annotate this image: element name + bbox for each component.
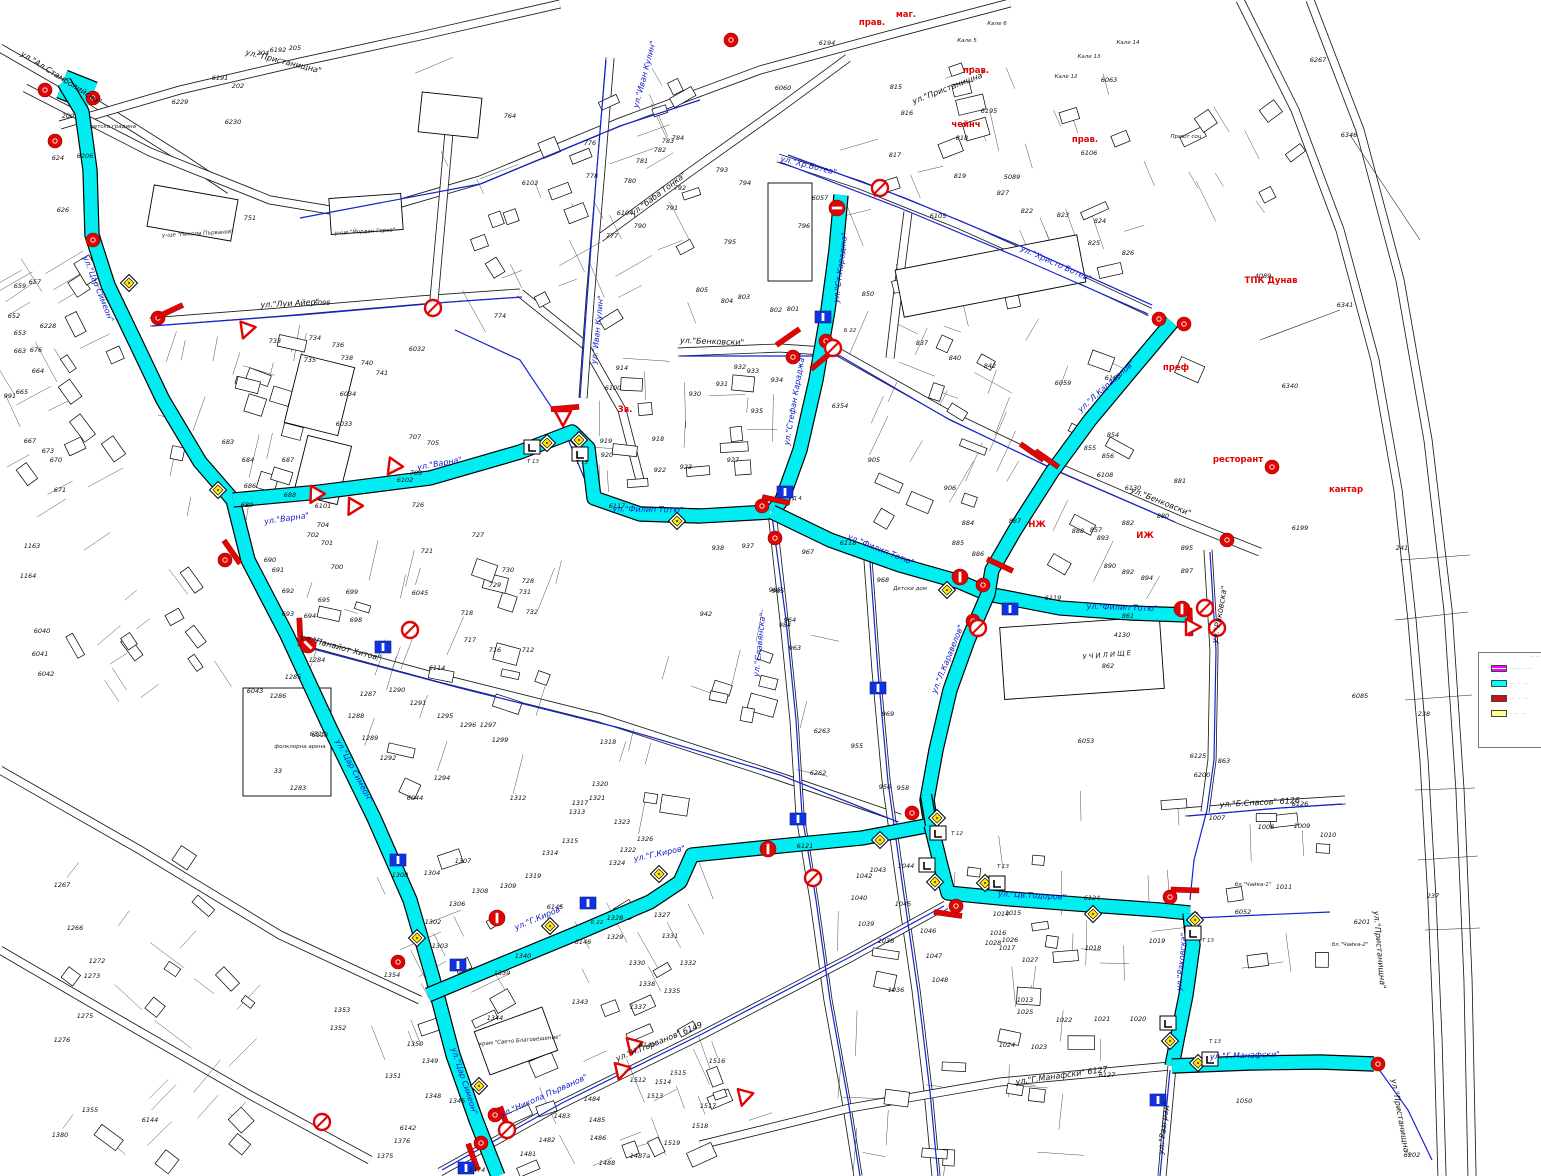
poi-label: Т 13 — [527, 459, 540, 465]
parcel-number: 1518 — [692, 1122, 709, 1130]
triangle-icon[interactable] — [734, 1089, 753, 1108]
parcel-number: 985 — [772, 587, 784, 595]
hydrant-icon[interactable] — [1220, 533, 1234, 547]
parcel-line — [307, 582, 312, 598]
parcel-number: 1292 — [380, 754, 397, 762]
parcel-number: 726 — [412, 501, 424, 509]
parcel-number: 6101 — [315, 502, 332, 510]
hydrant-icon[interactable] — [1177, 317, 1191, 331]
parcel-number: 657 — [29, 278, 42, 286]
annotation-label: Зв. — [618, 405, 633, 415]
parcel-number: 1164 — [20, 572, 37, 580]
hydrant-icon[interactable] — [1265, 460, 1279, 474]
parcel-number: 6262 — [810, 769, 827, 777]
parcel-number: 931 — [716, 380, 728, 388]
parcel-number: 854 — [1107, 431, 1119, 439]
parcel-number: 1340 — [515, 952, 532, 960]
hydrant-icon[interactable] — [1371, 1057, 1385, 1071]
noentry-icon[interactable] — [1174, 601, 1190, 617]
annotation-label: прав. — [859, 18, 885, 28]
parcel-number: 6042 — [38, 670, 55, 678]
building — [94, 1124, 123, 1150]
poi-label: Кале 13 — [1078, 54, 1101, 60]
parcel-line — [652, 68, 662, 85]
hydrant-icon[interactable] — [724, 33, 738, 47]
poi-label: бл."Чайка-1" — [1235, 882, 1272, 888]
parcel-number: 6118 — [840, 539, 857, 547]
parcel-number: 1320 — [592, 780, 609, 788]
building — [354, 602, 370, 613]
parcel-number: 1482 — [539, 1136, 556, 1144]
parcel-line — [800, 701, 807, 728]
building — [488, 211, 504, 228]
legend-item: ·· ·· ·· — [1491, 693, 1541, 704]
parcel-number: 815 — [890, 83, 902, 91]
water-main-street[interactable] — [64, 82, 498, 1176]
hydrant-icon[interactable] — [949, 899, 963, 913]
noentry-o-icon[interactable] — [1197, 600, 1213, 616]
hydrant-icon[interactable] — [391, 955, 405, 969]
building — [66, 633, 85, 658]
legend-item: ·· ·· ·· — [1491, 678, 1541, 689]
parcel-number: 897 — [1181, 567, 1194, 575]
parcel-number: 905 — [868, 456, 880, 464]
poi-label: Детски дом — [892, 586, 927, 592]
valve-icon[interactable] — [1171, 887, 1199, 893]
parcel-number: 801 — [787, 305, 799, 313]
diamond-icon[interactable] — [121, 275, 138, 292]
parcel-number: 6230 — [225, 118, 242, 126]
sign-t13-icon[interactable] — [919, 858, 935, 872]
legend-swatch-mag — [1491, 665, 1507, 672]
parcel-line — [918, 166, 943, 172]
building — [535, 671, 550, 686]
parcel-number: 822 — [1021, 207, 1033, 215]
annotation-label: ресторант — [1213, 455, 1263, 465]
parcel-number: 967 — [802, 548, 815, 556]
parcel-number: 884 — [962, 519, 974, 527]
parcel-number: 1327 — [654, 911, 671, 919]
parcel-number: 890 — [1104, 562, 1116, 570]
parcel-line — [510, 264, 521, 288]
parcel-number: 238 — [1418, 710, 1430, 718]
building — [1161, 799, 1187, 810]
sign-blue-icon[interactable] — [375, 641, 391, 653]
sign-t13-icon[interactable] — [524, 440, 540, 454]
building — [1097, 263, 1122, 279]
parcel-line — [1012, 967, 1016, 1007]
parcel-number: 1013 — [1017, 996, 1034, 1004]
parcel-number: 6034 — [340, 390, 357, 398]
parcel-number: 1285 — [285, 673, 302, 681]
building — [241, 995, 255, 1008]
noentry-o-icon[interactable] — [805, 870, 821, 886]
parcel-number: 730 — [502, 566, 514, 574]
map-viewport[interactable]: ул."Ал.Стамболийски"ул."Пристанищна"ул."… — [0, 0, 1541, 1176]
hydrant-icon[interactable] — [755, 499, 769, 513]
parcel-number: 712 — [522, 646, 534, 654]
parcel-number: 1018 — [1085, 944, 1102, 952]
parcel-line — [1059, 1094, 1063, 1130]
parcel-line — [863, 1152, 886, 1156]
parcel-number: 1343 — [572, 998, 589, 1006]
street-label: ул."Варна" — [263, 511, 310, 526]
building-large — [418, 92, 482, 138]
building — [215, 967, 239, 991]
parcel-number: 1296 — [460, 721, 477, 729]
annotation-label: маг. — [896, 10, 916, 20]
parcel-number: 1044 — [898, 862, 915, 870]
parcel-line — [995, 397, 1010, 436]
parcel-number: 942 — [700, 610, 712, 618]
parcel-line — [115, 985, 142, 1010]
noentry-o-icon[interactable] — [825, 340, 841, 356]
parcel-line — [118, 911, 129, 927]
legend-item-label: ·· ·· ·· — [1510, 696, 1528, 701]
parcel-line — [1400, 555, 1470, 560]
parcel-number: 6206 — [77, 152, 94, 160]
building — [1259, 186, 1276, 203]
building — [185, 625, 206, 648]
parcel-line — [105, 680, 119, 701]
parcel-number: 1286 — [270, 692, 287, 700]
parcel-line — [344, 609, 358, 613]
sign-t13-icon[interactable] — [572, 447, 588, 461]
water-main-street[interactable] — [926, 795, 931, 825]
parcel-line — [847, 206, 863, 246]
parcel-number: 6102 — [397, 476, 414, 484]
annotation-label: чейнч — [951, 120, 980, 130]
parcel-line — [645, 743, 651, 764]
poi-label: Т 13 — [1202, 938, 1215, 944]
parcel-number: 1306 — [449, 900, 466, 908]
building — [101, 436, 125, 462]
parcel-number: 784 — [672, 134, 684, 142]
parcel-line — [988, 370, 997, 394]
parcel-number: 1302 — [425, 918, 442, 926]
parcel-number: 6194 — [819, 39, 836, 47]
hydrant-icon[interactable] — [38, 83, 52, 97]
parcel-line — [607, 471, 608, 492]
parcel-number: 717 — [464, 636, 477, 644]
parcel-number: 6142 — [400, 1124, 417, 1132]
parcel-number: 1267 — [54, 881, 71, 889]
parcel-number: 689 — [241, 501, 253, 509]
parcel-line — [112, 668, 126, 690]
parcel-number: 837 — [916, 339, 929, 347]
triangle-icon[interactable] — [1186, 619, 1201, 635]
road-fill — [0, 950, 370, 1160]
sign-blue-icon[interactable] — [1002, 603, 1018, 615]
parcel-number: 895 — [1181, 544, 1193, 552]
parcel-number: 1043 — [870, 866, 887, 874]
parcel-number: 6354 — [832, 402, 849, 410]
parcel-line — [709, 394, 745, 395]
triangle-icon[interactable] — [342, 498, 363, 519]
parcel-number: 687 — [282, 456, 295, 464]
parcel-line — [1395, 612, 1468, 620]
hydrant-icon[interactable] — [474, 1136, 488, 1150]
parcel-number: 792 — [674, 184, 686, 192]
building — [638, 402, 652, 415]
parcel-line — [401, 638, 413, 669]
parcel-number: 698 — [350, 616, 362, 624]
parcel-number: 796 — [798, 222, 810, 230]
sign-blue-icon[interactable] — [450, 959, 466, 971]
parcel-line — [400, 575, 405, 599]
building — [517, 1160, 540, 1176]
poi-label: Кале 5 — [957, 38, 977, 44]
parcel-number: 6045 — [412, 589, 429, 597]
parcel-number: 736 — [332, 341, 344, 349]
parcel-number: 1020 — [1130, 1015, 1147, 1023]
parcel-line — [193, 396, 205, 431]
parcel-number: 956 — [879, 783, 891, 791]
parcel-line — [415, 57, 453, 73]
parcel-line — [990, 112, 999, 151]
parcel-number: 1321 — [589, 794, 606, 802]
building — [643, 793, 657, 804]
parcel-line — [1215, 173, 1223, 186]
noentry-icon[interactable] — [829, 200, 845, 216]
parcel-number: 1015 — [1005, 909, 1022, 917]
parcel-number: 6125 — [1190, 752, 1207, 760]
building — [228, 1107, 254, 1133]
parcel-number: 665 — [16, 388, 28, 396]
sign-blue-icon[interactable] — [870, 682, 886, 694]
parcel-line — [646, 153, 673, 169]
noentry-icon[interactable] — [760, 841, 776, 857]
annotation-label: прав. — [963, 66, 989, 76]
parcel-number: 699 — [346, 588, 358, 596]
sign-blue-icon[interactable] — [390, 854, 406, 866]
noentry-icon[interactable] — [489, 910, 505, 926]
parcel-line — [1260, 310, 1340, 340]
parcel-line — [688, 904, 704, 934]
street-label: ул."Бенковски" — [679, 336, 745, 347]
noentry-o-icon[interactable] — [872, 180, 888, 196]
parcel-number: 1517 — [700, 1102, 717, 1110]
parcel-number: 856 — [1102, 452, 1114, 460]
parcel-line — [187, 497, 191, 517]
noentry-o-icon[interactable] — [314, 1114, 330, 1130]
parcel-number: 1354 — [384, 971, 401, 979]
parcel-line — [1214, 107, 1229, 132]
parcel-line — [181, 340, 185, 360]
hydrant-icon[interactable] — [768, 531, 782, 545]
parcel-number: 1294 — [434, 774, 451, 782]
parcel-layer — [0, 57, 1480, 1176]
parcel-number: 6119 — [1045, 594, 1062, 602]
parcel-number: 958 — [897, 784, 909, 792]
sign-t13-icon[interactable] — [989, 876, 1005, 890]
sign-blue-icon[interactable] — [815, 311, 831, 323]
parcel-number: 676 — [30, 346, 42, 354]
parcel-number: 1007 — [1209, 814, 1226, 822]
poi-label: Б 22 — [844, 328, 857, 334]
parcel-line — [583, 1051, 606, 1062]
parcel-line — [1086, 920, 1087, 965]
parcel-number: 6199 — [1292, 524, 1309, 532]
parcel-line — [1025, 144, 1032, 169]
parcel-number: 1291 — [410, 699, 427, 707]
parcel-number: 933 — [747, 367, 759, 375]
parcel-line — [147, 1122, 171, 1146]
parcel-number: 919 — [600, 437, 612, 445]
parcel-line — [1100, 963, 1129, 964]
parcel-line — [749, 1113, 772, 1121]
building — [1059, 107, 1080, 123]
parcel-number: 6144 — [142, 1116, 159, 1124]
parcel-line — [676, 1086, 684, 1109]
diamond-icon[interactable] — [651, 866, 668, 883]
parcel-number: 1284 — [309, 656, 326, 664]
parcel-number: 6040 — [34, 627, 51, 635]
sign-blue-icon[interactable] — [777, 486, 793, 498]
parcel-number: 667 — [24, 437, 37, 445]
parcel-number: 1017 — [999, 944, 1016, 952]
parcel-line — [454, 916, 464, 936]
building — [942, 1062, 966, 1072]
parcel-line — [110, 653, 127, 664]
noentry-o-icon[interactable] — [402, 622, 418, 638]
building — [759, 675, 778, 690]
noentry-o-icon[interactable] — [499, 1122, 515, 1138]
parcel-number: 6192 — [270, 46, 287, 54]
parcel-number: 707 — [409, 433, 422, 441]
parcel-number: 930 — [689, 390, 701, 398]
parcel-number: 690 — [264, 556, 276, 564]
parcel-number: 774 — [494, 312, 506, 320]
parcel-number: 937 — [742, 542, 755, 550]
parcel-number: 6053 — [1078, 737, 1095, 745]
parcel-line — [1053, 500, 1067, 530]
parcel-number: 932 — [734, 363, 746, 371]
parcel-number: 918 — [652, 435, 664, 443]
building — [470, 234, 488, 250]
hydrant-icon[interactable] — [86, 233, 100, 247]
parcel-line — [513, 755, 523, 794]
triangle-icon[interactable] — [555, 411, 571, 426]
noentry-icon[interactable] — [952, 569, 968, 585]
parcel-number: 6346 — [1341, 131, 1358, 139]
poi-label: Кале 14 — [1117, 40, 1140, 46]
parcel-line — [559, 279, 577, 286]
parcel-number: 1021 — [1094, 1015, 1111, 1023]
parcel-number: 1016 — [990, 929, 1007, 937]
network-layer[interactable] — [62, 82, 1374, 1176]
poi-label: Д 4 — [791, 496, 802, 502]
parcel-number: 741 — [376, 369, 388, 377]
parcel-number: 684 — [242, 456, 254, 464]
building — [730, 426, 743, 441]
parcel-number: 1038 — [878, 937, 895, 945]
building — [317, 606, 341, 621]
hydrant-icon[interactable] — [976, 578, 990, 592]
sign-blue-icon[interactable] — [580, 897, 596, 909]
road-fill — [1310, 0, 1472, 1176]
building — [498, 592, 518, 612]
parcel-line — [693, 1049, 709, 1085]
parcel-line — [1124, 225, 1144, 231]
legend-item-label: · ·· ·· — [1510, 711, 1526, 716]
parcel-number: 914 — [616, 364, 628, 372]
parcel-number: 1331 — [662, 932, 679, 940]
parcel-number: 671 — [54, 486, 66, 494]
building — [612, 444, 637, 457]
parcel-number: 880 — [1157, 512, 1169, 520]
sign-blue-icon[interactable] — [790, 813, 806, 825]
parcel-number: 729 — [489, 581, 501, 589]
parcel-line — [871, 396, 883, 423]
building — [548, 182, 572, 200]
hydrant-icon[interactable] — [905, 806, 919, 820]
parcel-number: 920 — [601, 451, 613, 459]
parcel-number: 624 — [52, 154, 64, 162]
parcel-number: 704 — [317, 521, 329, 529]
parcel-number: 817 — [889, 151, 902, 159]
noentry-o-icon[interactable] — [970, 620, 986, 636]
parcel-line — [1256, 201, 1265, 213]
parcel-number: 963 — [789, 644, 801, 652]
parcel-number: 6197 — [1105, 374, 1122, 382]
parcel-number: 731 — [519, 588, 531, 596]
building — [601, 1000, 620, 1017]
parcel-number: 793 — [716, 166, 728, 174]
annotation-label: прав. — [1072, 135, 1098, 145]
parcel-number: 6201 — [1354, 918, 1371, 926]
parcel-line — [811, 635, 839, 641]
parcel-number: 1047 — [926, 952, 943, 960]
map-canvas[interactable]: ул."Ал.Стамболийски"ул."Пристанищна"ул."… — [0, 0, 1541, 1176]
parcel-number: 700 — [331, 563, 343, 571]
parcel-number: 863 — [1218, 757, 1230, 765]
building — [929, 383, 945, 402]
parcel-number: 204 — [257, 49, 269, 57]
parcel-number: 6044 — [407, 794, 424, 802]
parcel-number: 1287 — [360, 690, 377, 698]
parcel-number: 738 — [341, 354, 353, 362]
building — [1047, 554, 1071, 575]
parcel-line — [405, 550, 414, 587]
road-fill — [150, 293, 520, 322]
hydrant-icon[interactable] — [218, 553, 232, 567]
parcel-number: 202 — [232, 82, 244, 90]
hydrant-icon[interactable] — [48, 134, 62, 148]
parcel-number: 804 — [721, 297, 733, 305]
legend-items: ············ ·· ···· ·· ··· ·· ·· — [1491, 663, 1541, 719]
parcel-line — [151, 1084, 176, 1110]
sign-t13-icon[interactable] — [930, 826, 946, 840]
building — [60, 355, 76, 373]
parcel-number: 892 — [1122, 568, 1134, 576]
building — [1111, 130, 1130, 147]
hydrant-icon[interactable] — [1152, 312, 1166, 326]
sign-t13-icon[interactable] — [1160, 1016, 1176, 1030]
parcel-number: 653 — [14, 329, 26, 337]
noentry-o-icon[interactable] — [425, 300, 441, 316]
parcel-number: 1163 — [24, 542, 41, 550]
parcel-number: 6145 — [547, 903, 564, 911]
parcel-number: 1514 — [655, 1078, 672, 1086]
triangle-icon[interactable] — [235, 322, 255, 342]
parcel-number: 816 — [901, 109, 913, 117]
legend-item-label: ·· ·· ·· — [1510, 681, 1528, 686]
parcel-line — [910, 441, 922, 462]
parcel-number: 984 — [779, 621, 791, 629]
parcel-number: 1027 — [1022, 956, 1039, 964]
parcel-line — [194, 979, 214, 994]
